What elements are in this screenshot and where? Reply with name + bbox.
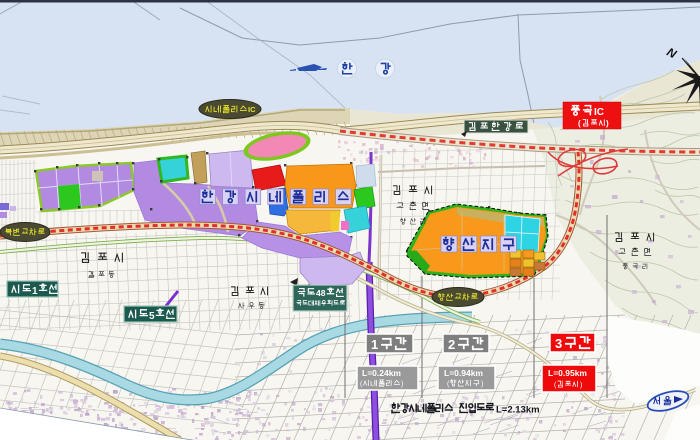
svg-text:1: 1 (371, 337, 378, 352)
svg-text:L=0.95km: L=0.95km (548, 368, 587, 378)
svg-text:IC: IC (248, 105, 256, 114)
svg-text:L=2.13km: L=2.13km (496, 405, 540, 416)
svg-text:3: 3 (555, 336, 562, 351)
svg-text:IC: IC (594, 107, 604, 118)
svg-text:5: 5 (149, 311, 155, 322)
svg-text:): ) (401, 381, 403, 388)
svg-text:48: 48 (316, 288, 326, 298)
svg-text:1: 1 (32, 286, 38, 297)
svg-text:2: 2 (448, 337, 455, 352)
svg-text:): ) (481, 381, 483, 388)
svg-text:): ) (580, 382, 582, 389)
svg-text:): ) (606, 119, 609, 128)
svg-text:L=0.24km: L=0.24km (362, 368, 401, 378)
svg-text:(: ( (578, 119, 581, 128)
svg-text:L=0.94km: L=0.94km (444, 368, 483, 378)
